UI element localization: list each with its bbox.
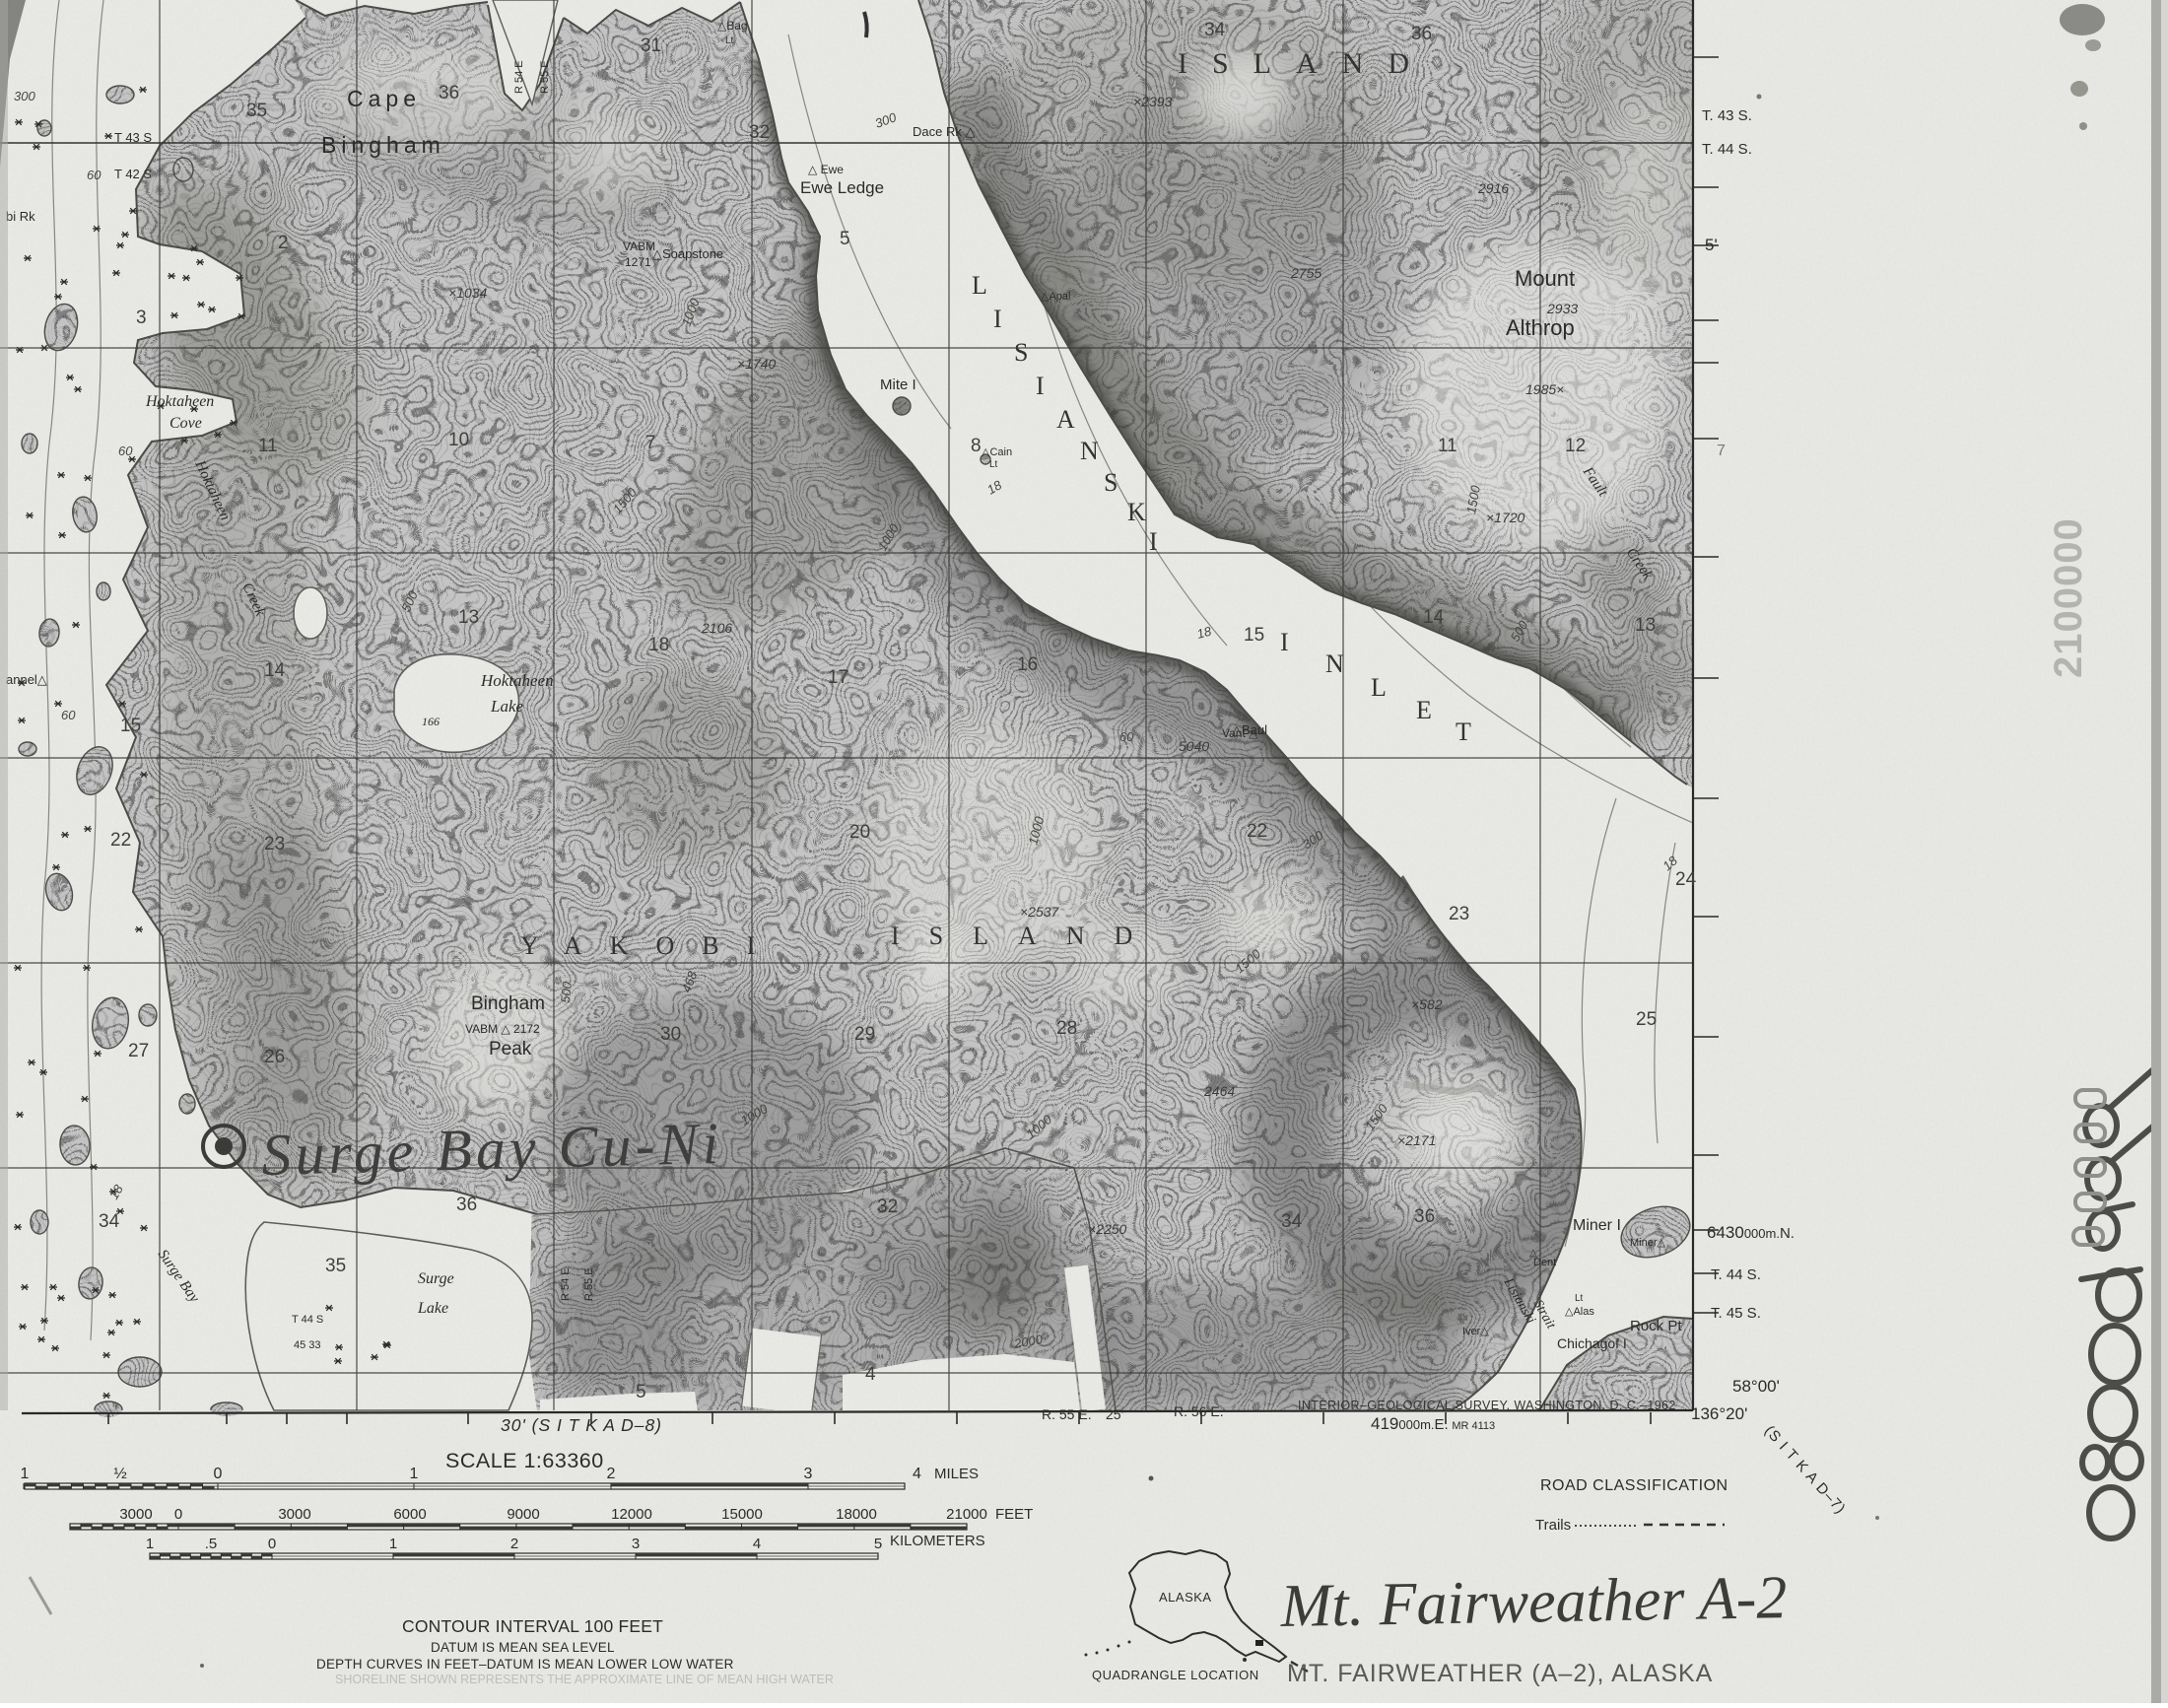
svg-text:R. 55 E.: R. 55 E. xyxy=(1042,1406,1092,1422)
svg-text:Lake: Lake xyxy=(490,697,524,716)
svg-text:22: 22 xyxy=(1247,821,1267,842)
svg-text:8: 8 xyxy=(971,436,982,456)
svg-text:7: 7 xyxy=(645,433,656,453)
svg-text:1: 1 xyxy=(21,1466,30,1482)
svg-text:35: 35 xyxy=(325,1256,346,1276)
svg-text:ISLAND: ISLAND xyxy=(1178,47,1434,80)
svg-text:14: 14 xyxy=(264,660,286,681)
svg-text:13: 13 xyxy=(458,607,479,628)
svg-text:Iver△: Iver△ xyxy=(1462,1326,1489,1337)
svg-text:31: 31 xyxy=(641,35,661,56)
svg-text:30' (S I T K A D–8): 30' (S I T K A D–8) xyxy=(501,1415,662,1435)
svg-text:18000: 18000 xyxy=(836,1506,877,1523)
svg-text:0: 0 xyxy=(214,1466,223,1482)
svg-text:60: 60 xyxy=(61,708,76,722)
svg-text:T. 44 S.: T. 44 S. xyxy=(1702,141,1752,158)
svg-text:11: 11 xyxy=(258,436,278,456)
svg-text:N: N xyxy=(1325,649,1344,678)
svg-text:7: 7 xyxy=(1717,443,1726,459)
svg-text:Cape: Cape xyxy=(347,86,421,111)
svg-text:18: 18 xyxy=(648,635,669,655)
svg-text:E: E xyxy=(1416,696,1432,724)
svg-text:4: 4 xyxy=(753,1536,761,1552)
svg-text:Miner I: Miner I xyxy=(1573,1217,1621,1234)
svg-text:T. 43 S.: T. 43 S. xyxy=(1702,107,1752,124)
svg-text:25: 25 xyxy=(1636,1009,1657,1030)
svg-text:1: 1 xyxy=(410,1466,419,1482)
svg-text:4: 4 xyxy=(865,1364,876,1385)
svg-text:×1034: ×1034 xyxy=(448,285,488,301)
svg-text:Hoktaheen: Hoktaheen xyxy=(145,393,214,410)
svg-text:DATUM IS MEAN SEA LEVEL: DATUM IS MEAN SEA LEVEL xyxy=(431,1640,615,1655)
svg-text:Surge: Surge xyxy=(418,1270,454,1287)
svg-text:15000: 15000 xyxy=(721,1506,763,1523)
svg-text:MT. FAIRWEATHER (A–2), ALASKA: MT. FAIRWEATHER (A–2), ALASKA xyxy=(1287,1660,1713,1687)
svg-text:26: 26 xyxy=(264,1047,285,1067)
svg-text:58°00': 58°00' xyxy=(1732,1377,1780,1396)
svg-text:23: 23 xyxy=(1449,904,1469,924)
svg-text:Dace Rk △: Dace Rk △ xyxy=(913,124,975,139)
svg-text:VABM: VABM xyxy=(623,239,655,253)
svg-text:2: 2 xyxy=(278,233,289,253)
svg-text:Peak: Peak xyxy=(489,1039,532,1059)
svg-text:S: S xyxy=(1014,338,1028,367)
svg-text:KILOMETERS: KILOMETERS xyxy=(890,1533,985,1549)
svg-text:△Bag: △Bag xyxy=(717,19,748,33)
svg-text:K: K xyxy=(1127,498,1146,526)
svg-text:×1720: ×1720 xyxy=(1486,510,1525,525)
svg-text:R 54 E: R 54 E xyxy=(513,60,525,94)
svg-text:Chichagof I: Chichagof I xyxy=(1557,1335,1627,1351)
svg-text:×2393: ×2393 xyxy=(1133,94,1173,109)
svg-text:bi Rk: bi Rk xyxy=(6,209,35,224)
svg-text:MILES: MILES xyxy=(934,1466,979,1482)
svg-text:11: 11 xyxy=(1438,436,1457,456)
svg-text:SCALE 1:63360: SCALE 1:63360 xyxy=(445,1449,604,1472)
svg-text:2106: 2106 xyxy=(701,620,732,636)
svg-text:34: 34 xyxy=(1204,20,1226,40)
svg-text:I: I xyxy=(1149,527,1158,556)
svg-text:△Cain: △Cain xyxy=(982,446,1012,458)
svg-text:6000: 6000 xyxy=(393,1506,426,1523)
svg-text:Hoktaheen: Hoktaheen xyxy=(480,671,554,690)
svg-text:12000: 12000 xyxy=(611,1506,652,1523)
svg-text:36: 36 xyxy=(1411,24,1432,44)
svg-text:×2537: ×2537 xyxy=(1020,904,1060,920)
svg-text:25': 25' xyxy=(1106,1406,1123,1422)
svg-text:5040: 5040 xyxy=(1179,738,1209,754)
svg-text:500: 500 xyxy=(558,981,575,1004)
svg-text:136°20': 136°20' xyxy=(1691,1404,1747,1423)
svg-text:Surge Bay Cu-Ni: Surge Bay Cu-Ni xyxy=(261,1111,723,1188)
svg-text:INTERIOR–GEOLOGICAL SURVEY, WA: INTERIOR–GEOLOGICAL SURVEY, WASHINGTON, … xyxy=(1298,1399,1676,1412)
svg-text:Lt: Lt xyxy=(1575,1293,1584,1304)
svg-text:29: 29 xyxy=(854,1024,875,1045)
svg-text:Lt: Lt xyxy=(989,459,998,470)
svg-text:Cove: Cove xyxy=(169,415,202,432)
svg-text:27: 27 xyxy=(128,1041,149,1061)
svg-text:5: 5 xyxy=(874,1536,882,1552)
svg-text:I: I xyxy=(1036,372,1045,400)
svg-text:3: 3 xyxy=(136,307,147,328)
svg-text:32: 32 xyxy=(749,122,770,143)
svg-text:15: 15 xyxy=(120,716,141,736)
svg-text:28: 28 xyxy=(1056,1018,1077,1039)
svg-text:1: 1 xyxy=(146,1536,154,1552)
svg-text:3: 3 xyxy=(804,1466,813,1482)
svg-text:14: 14 xyxy=(1423,607,1445,628)
svg-text:45 33: 45 33 xyxy=(294,1339,321,1351)
svg-text:2916: 2916 xyxy=(1477,180,1509,196)
svg-text:annel△: annel△ xyxy=(6,672,47,687)
svg-text:△Alas: △Alas xyxy=(1565,1306,1594,1318)
svg-text:Lake: Lake xyxy=(417,1300,448,1317)
svg-text:10: 10 xyxy=(448,430,469,450)
svg-text:SHORELINE SHOWN REPRESENTS THE: SHORELINE SHOWN REPRESENTS THE APPROXIMA… xyxy=(335,1673,834,1686)
svg-text:2100000: 2100000 xyxy=(2047,517,2090,678)
svg-text:34: 34 xyxy=(99,1211,120,1232)
svg-text:32: 32 xyxy=(877,1196,898,1217)
svg-text:22: 22 xyxy=(110,830,131,851)
svg-text:15: 15 xyxy=(1244,625,1264,646)
svg-text:×2250: ×2250 xyxy=(1088,1221,1127,1237)
svg-text:1: 1 xyxy=(389,1536,397,1552)
svg-text:ISLAND: ISLAND xyxy=(891,922,1162,950)
svg-text:60: 60 xyxy=(87,168,102,182)
svg-text:3000: 3000 xyxy=(278,1506,310,1523)
svg-text:17: 17 xyxy=(828,667,848,688)
svg-text:A: A xyxy=(1056,405,1075,434)
svg-text:23: 23 xyxy=(264,834,285,854)
svg-text:60: 60 xyxy=(1119,729,1134,744)
svg-text:5: 5 xyxy=(636,1382,646,1402)
svg-text:12: 12 xyxy=(1565,436,1586,456)
svg-text:½: ½ xyxy=(113,1466,126,1482)
svg-text:60: 60 xyxy=(118,444,133,458)
svg-text:300: 300 xyxy=(14,89,35,103)
svg-text:30: 30 xyxy=(660,1024,681,1045)
svg-text:0: 0 xyxy=(268,1536,276,1552)
svg-text:CONTOUR INTERVAL 100 FEET: CONTOUR INTERVAL 100 FEET xyxy=(402,1616,663,1636)
svg-text:3000: 3000 xyxy=(119,1506,152,1523)
svg-text:L: L xyxy=(972,271,987,300)
svg-text:YAKOBI: YAKOBI xyxy=(520,931,782,960)
svg-text:VABM △ 2172: VABM △ 2172 xyxy=(465,1022,540,1036)
svg-text:Althrop: Althrop xyxy=(1506,315,1575,340)
svg-text:R. 56 E.: R. 56 E. xyxy=(1174,1403,1224,1419)
svg-text:Dent: Dent xyxy=(1533,1257,1556,1268)
svg-text:Mite I: Mite I xyxy=(880,376,916,393)
svg-text:Mt. Fairweather A-2: Mt. Fairweather A-2 xyxy=(1279,1564,1788,1640)
svg-text:T: T xyxy=(1456,717,1471,746)
svg-text:Ewe Ledge: Ewe Ledge xyxy=(800,178,884,197)
svg-text:△Baul: △Baul xyxy=(1232,722,1267,737)
svg-text:R 54 E: R 54 E xyxy=(560,1267,572,1301)
svg-text:△Apal: △Apal xyxy=(1041,291,1070,303)
svg-text:34: 34 xyxy=(1281,1211,1303,1232)
svg-text:DEPTH CURVES IN FEET–DATUM IS: DEPTH CURVES IN FEET–DATUM IS MEAN LOWER… xyxy=(316,1657,734,1672)
svg-text:1985×: 1985× xyxy=(1525,381,1564,397)
svg-text:13: 13 xyxy=(1635,615,1656,636)
svg-text:24: 24 xyxy=(1675,869,1697,890)
svg-text:35: 35 xyxy=(246,101,267,121)
svg-text:1271: 1271 xyxy=(625,255,651,269)
svg-text:Trails: Trails xyxy=(1535,1517,1571,1534)
svg-text:×1740: ×1740 xyxy=(737,356,777,372)
svg-text:T. 44 S.: T. 44 S. xyxy=(1711,1266,1761,1283)
svg-text:.5: .5 xyxy=(205,1536,218,1552)
svg-text:5': 5' xyxy=(1705,236,1718,254)
svg-text:6430000m.N.: 6430000m.N. xyxy=(1707,1223,1795,1242)
svg-text:Bingham: Bingham xyxy=(471,993,545,1014)
svg-text:21000: 21000 xyxy=(946,1506,987,1523)
svg-text:S: S xyxy=(1104,468,1118,497)
svg-text:Rock Pt: Rock Pt xyxy=(1630,1318,1682,1334)
svg-text:×2171: ×2171 xyxy=(1397,1132,1436,1148)
svg-text:N: N xyxy=(1080,437,1099,465)
svg-text:0: 0 xyxy=(174,1506,182,1523)
svg-text:3: 3 xyxy=(632,1536,640,1552)
svg-text:166: 166 xyxy=(422,715,440,728)
svg-text:2755: 2755 xyxy=(1290,265,1321,281)
svg-text:I: I xyxy=(993,305,1002,333)
svg-text:△ Ewe: △ Ewe xyxy=(808,163,844,176)
svg-text:4: 4 xyxy=(913,1466,921,1482)
svg-text:36: 36 xyxy=(456,1195,477,1215)
svg-text:T 43 S: T 43 S xyxy=(114,130,152,145)
svg-text:R 55 E: R 55 E xyxy=(539,60,551,94)
svg-text:L: L xyxy=(1371,673,1387,702)
svg-text:△Soapstone: △Soapstone xyxy=(652,246,723,261)
svg-text:R 55 E: R 55 E xyxy=(583,1267,595,1301)
svg-text:2: 2 xyxy=(607,1466,616,1482)
svg-text:20: 20 xyxy=(849,822,870,843)
svg-text:Miner△: Miner△ xyxy=(1630,1237,1666,1249)
svg-text:Mount: Mount xyxy=(1515,266,1575,291)
svg-text:36: 36 xyxy=(439,83,459,103)
svg-text:2464: 2464 xyxy=(1203,1083,1235,1099)
svg-text:FEET: FEET xyxy=(995,1506,1033,1523)
svg-text:T. 45 S.: T. 45 S. xyxy=(1711,1305,1761,1322)
svg-text:16: 16 xyxy=(1017,654,1038,675)
svg-text:ALASKA: ALASKA xyxy=(1159,1590,1212,1605)
svg-text:2: 2 xyxy=(510,1536,518,1552)
svg-text:2933: 2933 xyxy=(1546,301,1578,316)
svg-text:×582: ×582 xyxy=(1411,996,1443,1012)
svg-text:Lt: Lt xyxy=(725,35,734,46)
svg-text:9000: 9000 xyxy=(507,1506,539,1523)
svg-text:Bingham: Bingham xyxy=(321,132,445,158)
svg-text:36: 36 xyxy=(1414,1206,1435,1227)
svg-text:ROAD CLASSIFICATION: ROAD CLASSIFICATION xyxy=(1540,1477,1728,1494)
svg-text:I: I xyxy=(1280,628,1289,656)
svg-text:QUADRANGLE LOCATION: QUADRANGLE LOCATION xyxy=(1092,1668,1259,1682)
svg-text:T 42 S: T 42 S xyxy=(114,167,152,181)
svg-text:T 44 S: T 44 S xyxy=(292,1314,323,1326)
svg-text:5: 5 xyxy=(840,229,850,249)
